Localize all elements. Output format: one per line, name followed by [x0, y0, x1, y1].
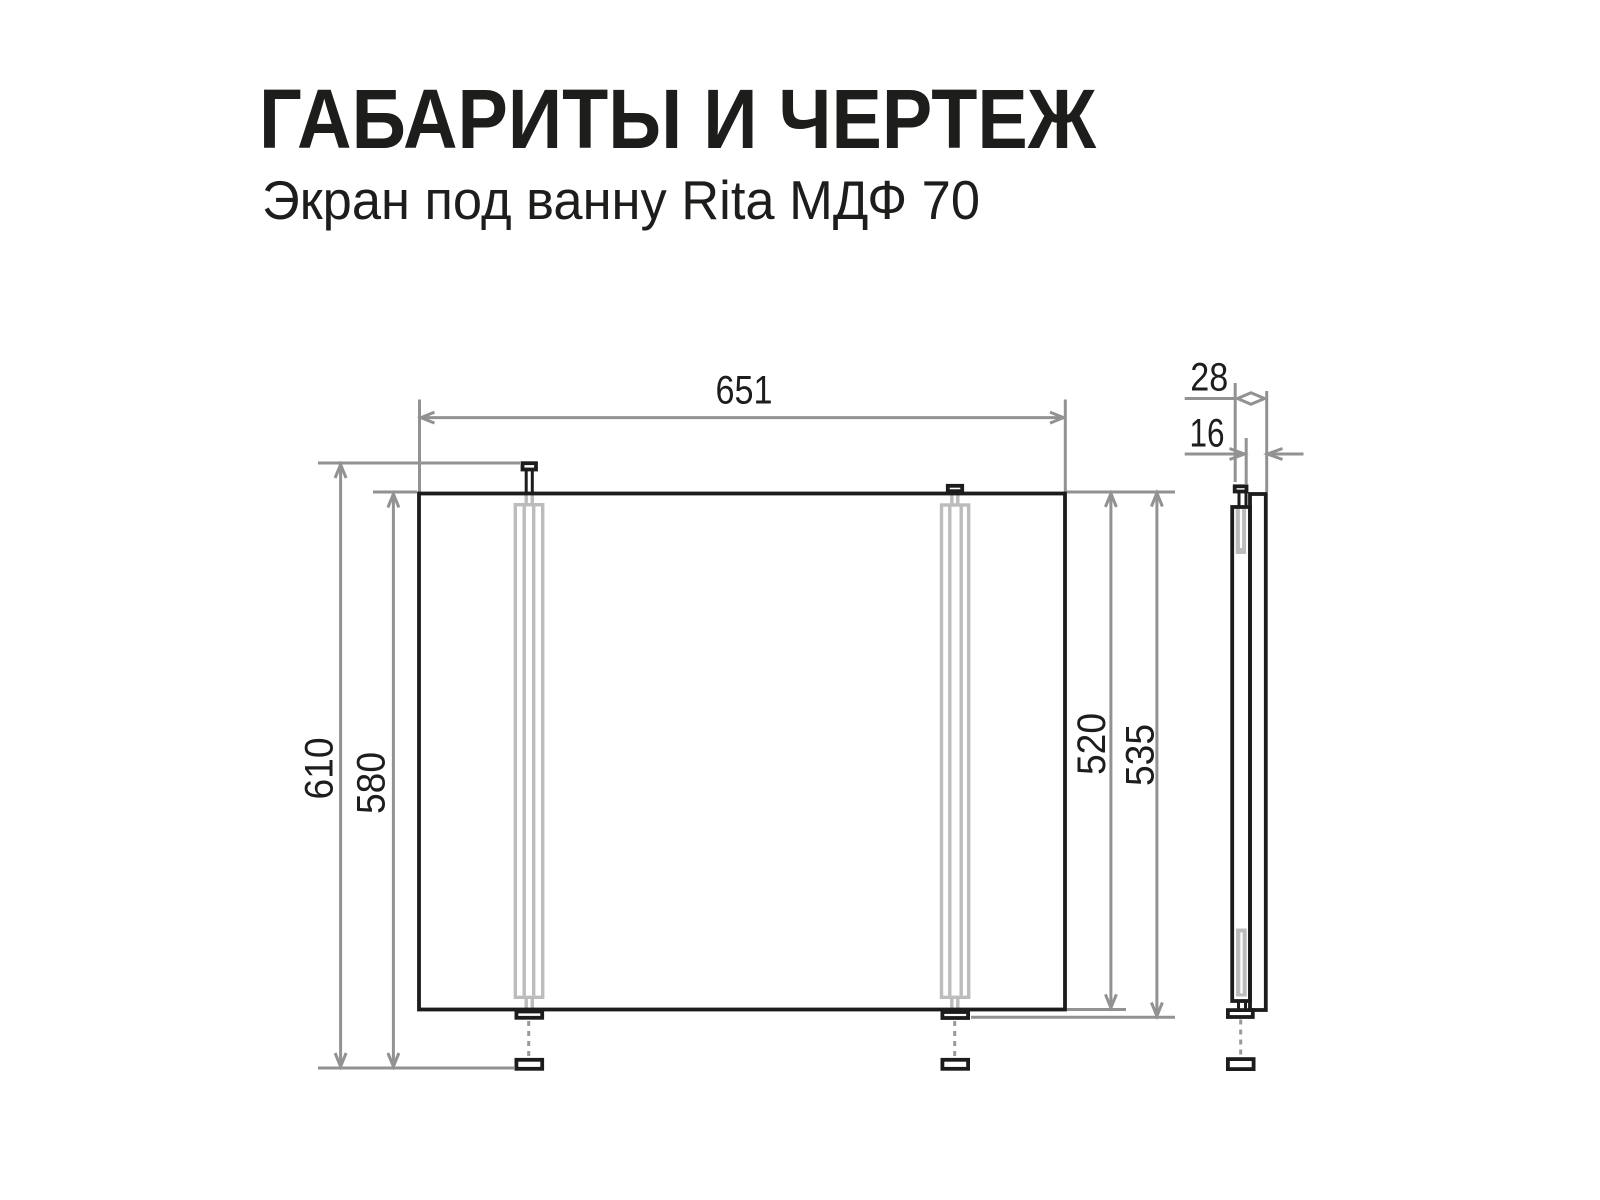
- svg-text:520: 520: [1070, 713, 1114, 775]
- svg-text:610: 610: [298, 738, 342, 800]
- svg-text:Экран под ванну Rita МДФ 70: Экран под ванну Rita МДФ 70: [262, 169, 980, 231]
- svg-text:580: 580: [350, 752, 394, 814]
- svg-text:ГАБАРИТЫ И ЧЕРТЕЖ: ГАБАРИТЫ И ЧЕРТЕЖ: [259, 72, 1097, 166]
- svg-text:651: 651: [716, 369, 773, 413]
- svg-text:16: 16: [1190, 412, 1225, 456]
- svg-text:28: 28: [1190, 356, 1228, 400]
